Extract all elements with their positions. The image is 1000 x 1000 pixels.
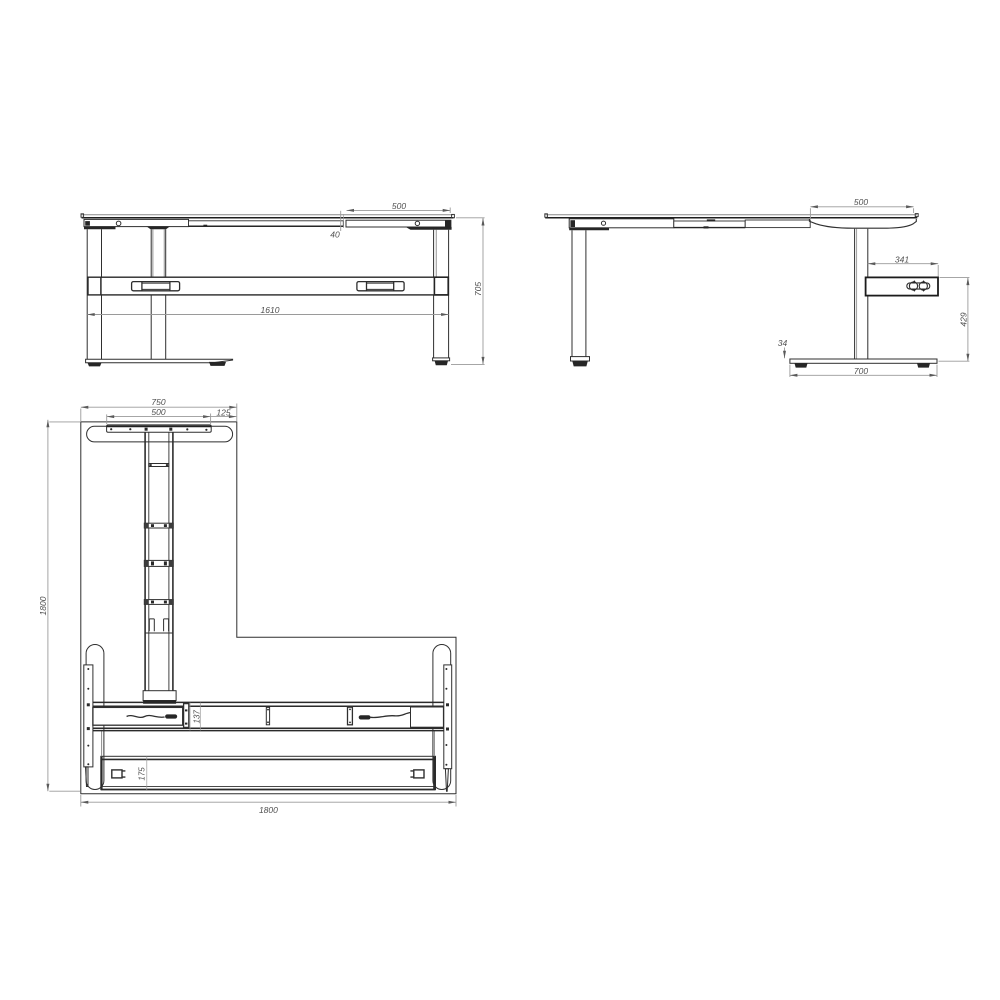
- svg-text:175: 175: [138, 767, 147, 781]
- svg-text:500: 500: [392, 201, 406, 211]
- svg-text:1610: 1610: [261, 305, 280, 315]
- svg-text:750: 750: [151, 397, 165, 407]
- svg-text:40: 40: [330, 230, 340, 240]
- svg-text:341: 341: [895, 254, 909, 264]
- svg-text:1800: 1800: [259, 805, 278, 815]
- svg-text:1800: 1800: [38, 596, 48, 615]
- svg-text:500: 500: [854, 197, 868, 207]
- svg-text:700: 700: [854, 366, 868, 376]
- svg-text:500: 500: [151, 407, 165, 417]
- svg-text:705: 705: [473, 282, 483, 296]
- svg-text:34: 34: [778, 338, 788, 348]
- svg-text:429: 429: [958, 312, 968, 326]
- svg-text:137: 137: [192, 710, 201, 724]
- svg-text:125: 125: [216, 407, 230, 417]
